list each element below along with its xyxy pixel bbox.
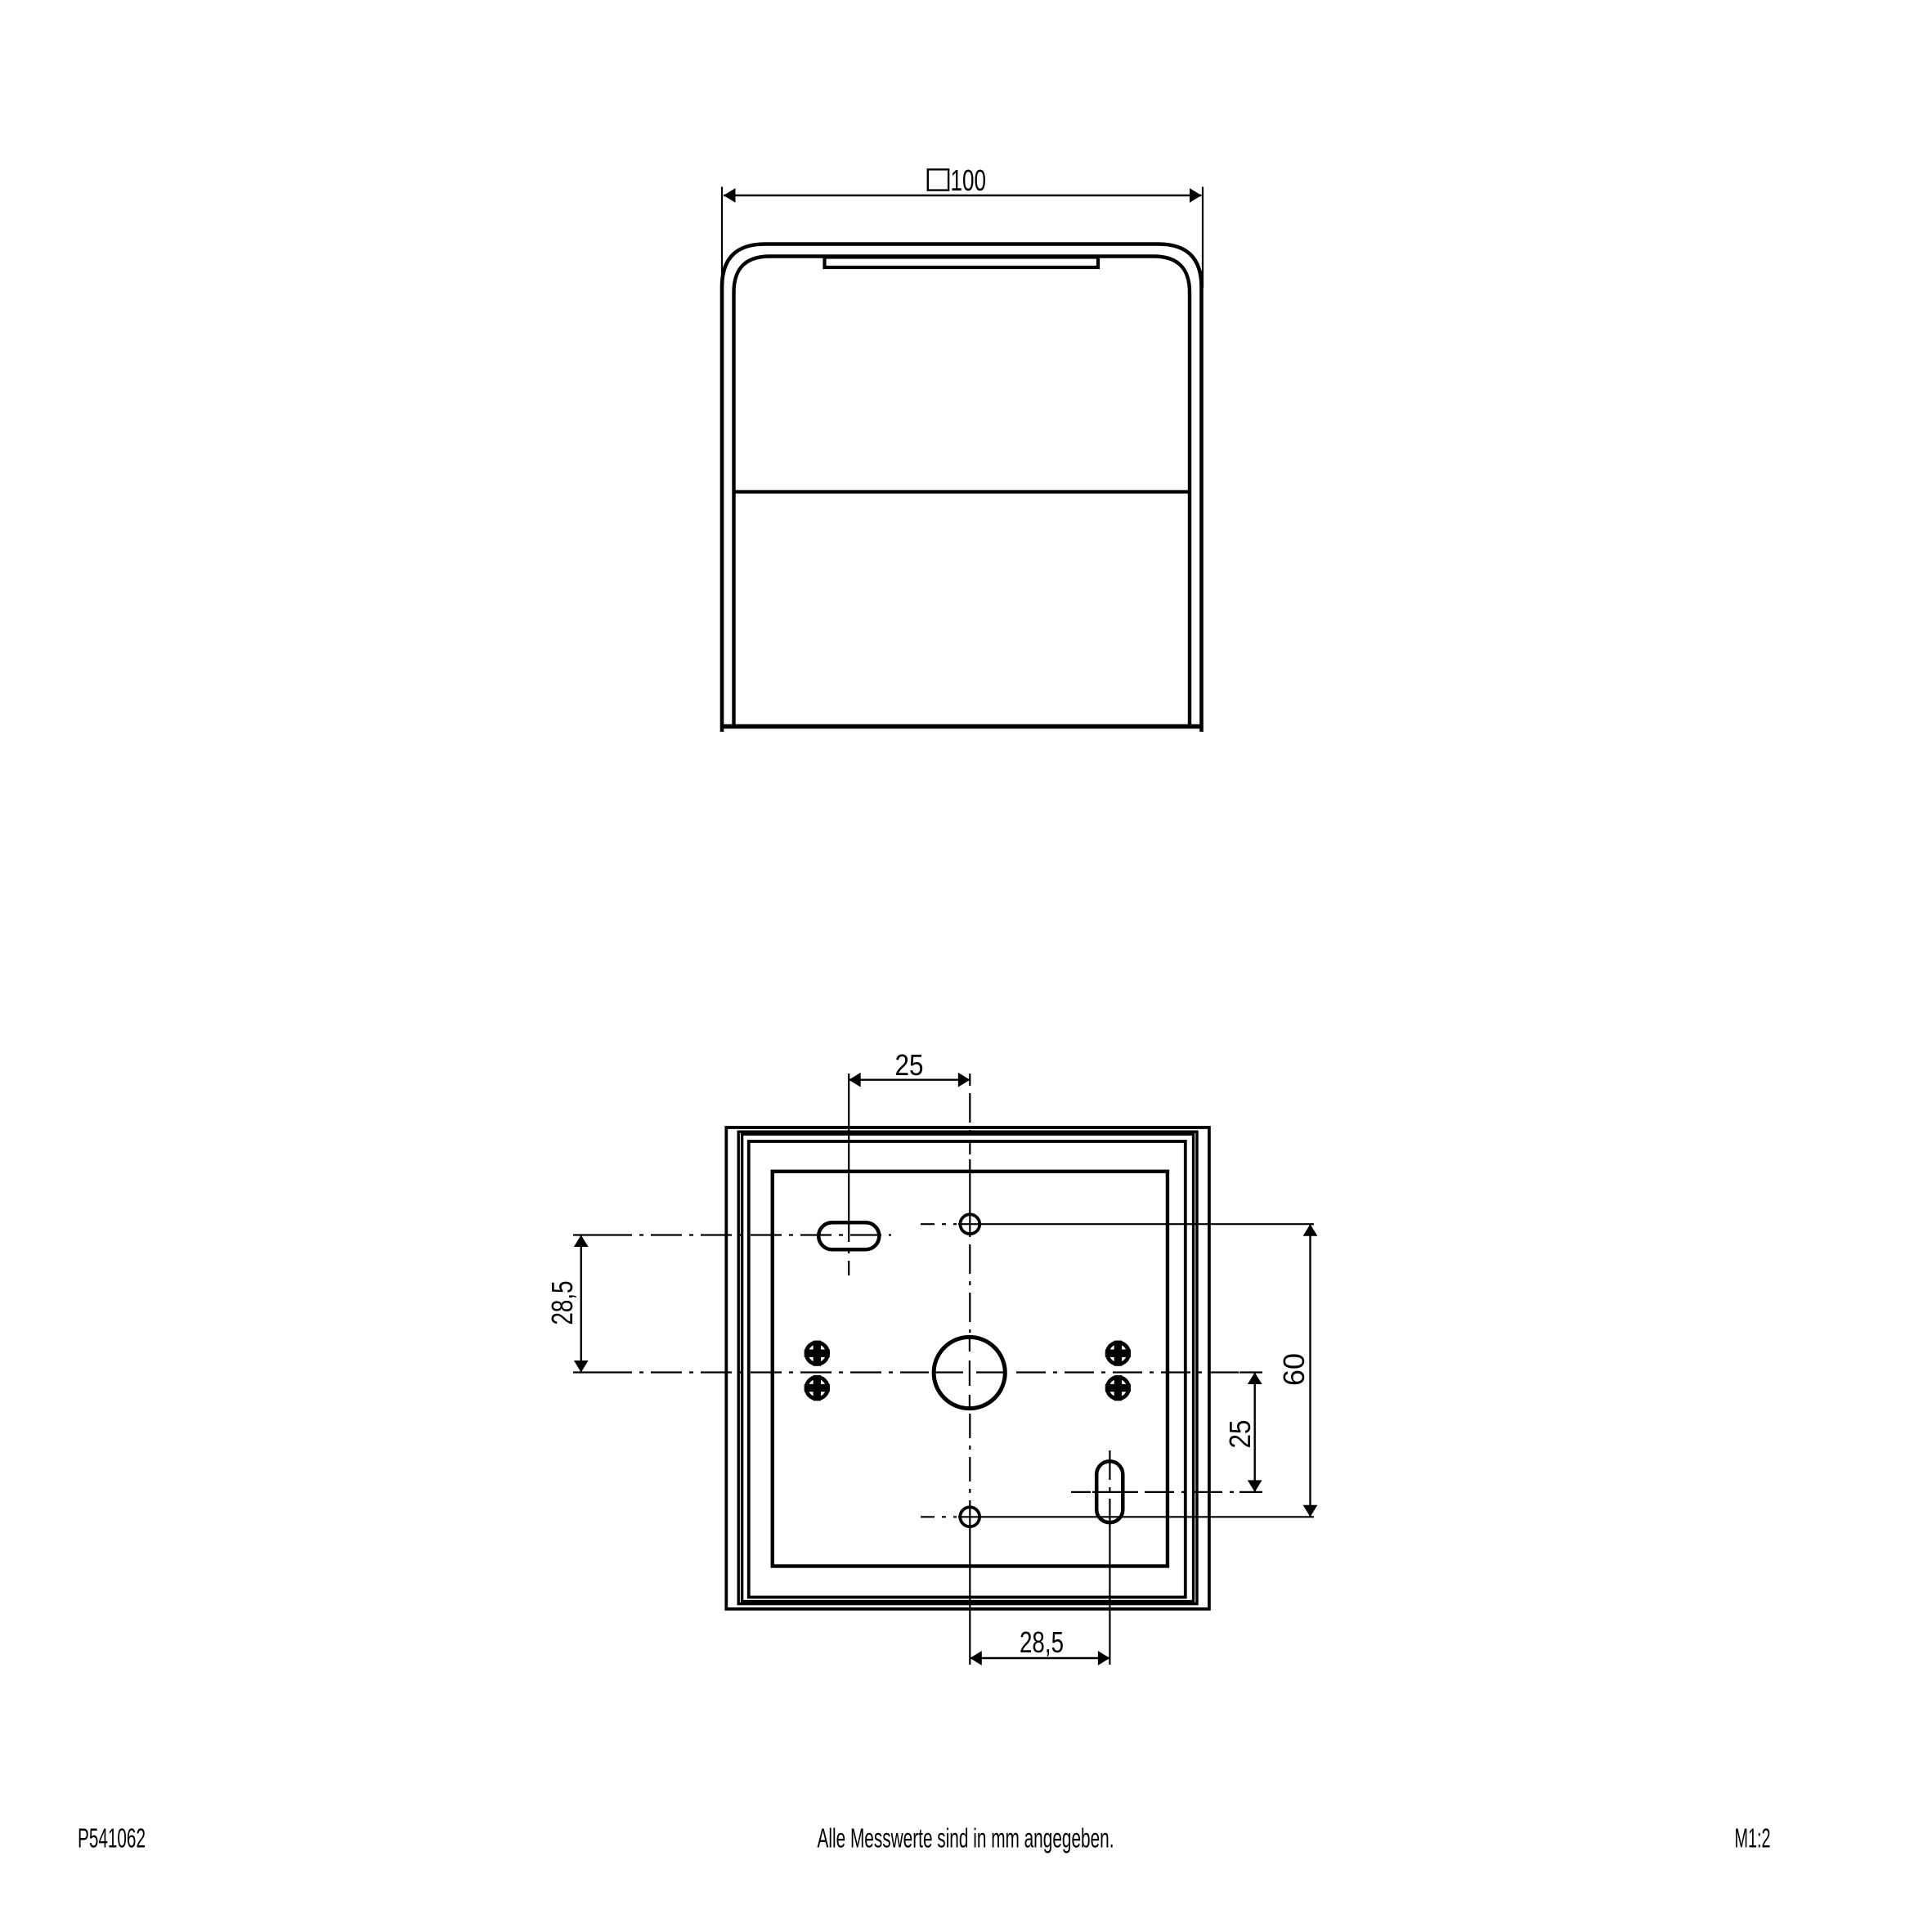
svg-text:P541062: P541062 <box>78 1823 146 1854</box>
svg-text:28,5: 28,5 <box>545 1281 579 1325</box>
svg-text:M1:2: M1:2 <box>1735 1823 1771 1854</box>
svg-text:28,5: 28,5 <box>1020 1625 1064 1659</box>
svg-text:25: 25 <box>895 1048 924 1082</box>
svg-text:Alle Messwerte sind in mm ange: Alle Messwerte sind in mm angegeben. <box>818 1823 1114 1854</box>
svg-text:25: 25 <box>1223 1420 1257 1449</box>
svg-text:100: 100 <box>951 164 987 197</box>
svg-text:60: 60 <box>1277 1353 1311 1386</box>
